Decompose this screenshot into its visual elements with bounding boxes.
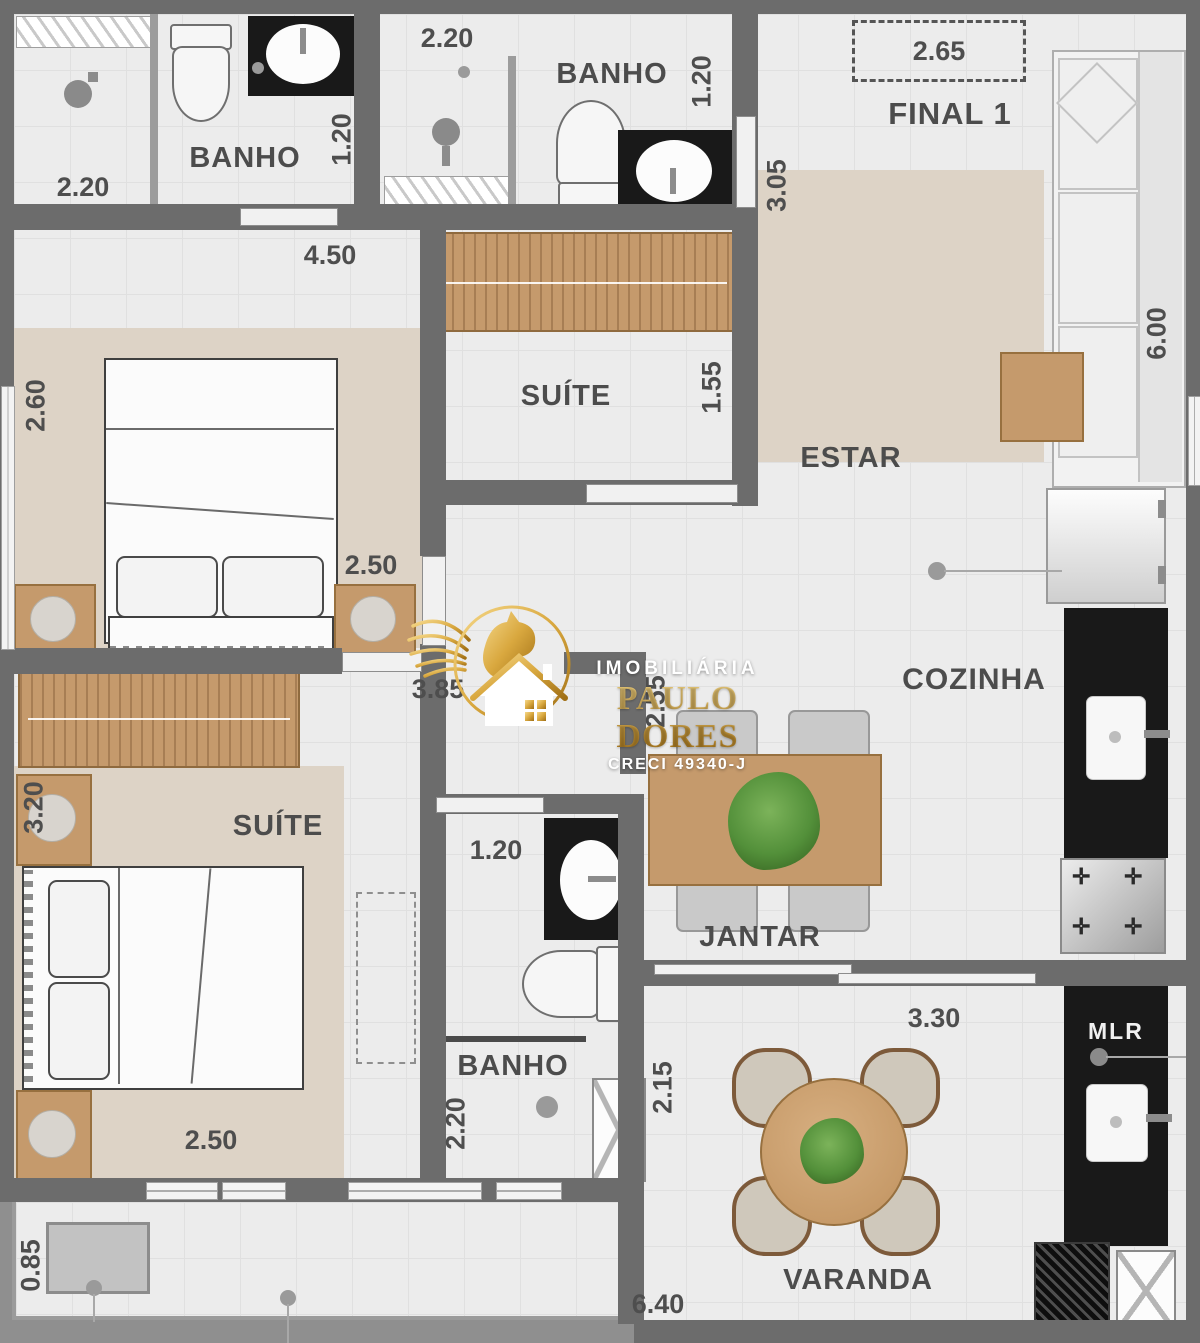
brand-line-1: IMOBILIÁRIA <box>560 658 795 680</box>
outside-bottom-left <box>0 1322 634 1343</box>
room-label-final1: FINAL 1 <box>875 96 1025 132</box>
dim-suite2-width: 2.50 <box>171 1125 251 1156</box>
dim-ledge-depth: 0.85 <box>16 1226 47 1306</box>
dim-suite1-depth: 2.60 <box>21 366 52 446</box>
estar-window <box>1188 396 1200 486</box>
banho3-toilet-bowl <box>522 950 600 1018</box>
suite1-headboard <box>108 616 334 650</box>
wall-varanda-bottom <box>632 1320 1200 1343</box>
fridge-hinge-bottom <box>1158 566 1166 584</box>
stove-burner-icon: ✛ <box>1124 866 1142 888</box>
varanda-sliding-door-panel-2 <box>838 973 1036 984</box>
dim-suite-top-width: 4.50 <box>290 240 370 271</box>
suite2-window-1 <box>146 1182 218 1200</box>
stove-burner-icon: ✛ <box>1072 866 1090 888</box>
suite2-wardrobe <box>18 668 300 768</box>
suite1-pillow-left <box>116 556 218 618</box>
dim-varanda-length: 6.40 <box>618 1289 698 1320</box>
service-leader-line <box>1106 1056 1186 1058</box>
banho1-shower-arm <box>88 72 98 82</box>
banho1-shower-partition <box>150 14 158 208</box>
estar-sofa-back <box>1138 52 1182 482</box>
dim-final-width: 2.65 <box>913 36 966 67</box>
suite2-window-3 <box>348 1182 482 1200</box>
room-label-banho1: BANHO <box>170 142 320 175</box>
room-label-jantar: JANTAR <box>685 921 835 954</box>
wall-banho1-banho2 <box>354 0 380 212</box>
suite-top-door <box>586 484 738 503</box>
suite-top-wardrobe <box>428 232 738 332</box>
banho3-shower-partition <box>436 1036 586 1042</box>
dim-varanda-depth: 2.15 <box>648 1048 679 1128</box>
suite1-lamp-right <box>350 596 396 642</box>
kitchen-fridge <box>1046 488 1166 604</box>
room-label-banho3: BANHO <box>438 1050 588 1083</box>
kitchen-faucet <box>1144 730 1170 738</box>
suite2-lamp-bottom <box>28 1110 76 1158</box>
wall-suite1-bottom <box>0 648 342 674</box>
dim-varanda-width: 3.30 <box>894 1003 974 1034</box>
dim-suite1-width: 2.50 <box>331 550 411 581</box>
dim-banho1-depth: 1.20 <box>327 100 358 180</box>
estar-sofa-cushion-2 <box>1058 192 1138 324</box>
wall-top <box>0 0 1200 14</box>
room-label-banho2: BANHO <box>537 58 687 91</box>
dim-banho3-width: 1.20 <box>456 835 536 866</box>
wall-suitetop-estar <box>732 0 758 506</box>
final1-dashed-opening: 2.65 <box>852 20 1026 82</box>
shower-head-icon <box>64 80 92 108</box>
room-label-cozinha: COZINHA <box>884 663 1064 697</box>
dim-entry-depth: 3.05 <box>762 146 793 226</box>
banho3-door <box>436 797 544 813</box>
banho2-leader-dot <box>458 66 470 78</box>
suite1-bed-sheet-line <box>106 428 334 430</box>
banho3-shower-drain <box>536 1096 558 1118</box>
ledge-leader-line <box>287 1304 289 1343</box>
banho2-door <box>736 116 756 208</box>
banho2-faucet <box>670 168 676 194</box>
banho3-faucet <box>588 876 616 882</box>
dim-estar-length: 6.00 <box>1142 289 1173 379</box>
service-faucet <box>1146 1114 1172 1122</box>
banho1-faucet <box>300 28 306 54</box>
wall-banho3-right <box>618 794 644 1178</box>
banho1-door <box>240 208 338 226</box>
banho2-shower-arm <box>442 146 450 166</box>
dim-banho2-depth: 1.20 <box>687 42 718 122</box>
suite1-lamp-left <box>30 596 76 642</box>
shower-head-icon <box>432 118 460 146</box>
banho2-shower-glass <box>384 176 514 206</box>
mlr-label: MLR <box>1088 1018 1144 1045</box>
dim-banho1-width: 2.20 <box>43 172 123 203</box>
dim-closet-depth: 1.55 <box>697 348 728 428</box>
room-label-suite-lower: SUÍTE <box>203 810 353 843</box>
service-drain <box>1110 1116 1122 1128</box>
suite2-pillow-top <box>48 880 110 978</box>
room-label-suite-top: SUÍTE <box>491 380 641 413</box>
stove-burner-icon: ✛ <box>1124 916 1142 938</box>
banho1-toilet-bowl <box>172 46 230 122</box>
fridge-hinge-top <box>1158 500 1166 518</box>
suite2-bed-sheet-line <box>118 868 120 1084</box>
stove-burner-icon: ✛ <box>1072 916 1090 938</box>
water-heater-box <box>1034 1242 1110 1332</box>
dim-suite2-depth: 3.20 <box>19 768 50 848</box>
dim-banho3-depth: 2.20 <box>441 1084 472 1164</box>
suite2-dashed-closet <box>356 892 416 1064</box>
wall-right <box>1186 0 1200 1343</box>
brand-line-3: CRECI 49340-J <box>560 756 795 774</box>
banho1-leader-dot <box>252 62 264 74</box>
suite2-pillow-bottom <box>48 982 110 1080</box>
brand-watermark: IMOBILIÁRIA PAULO DORES CRECI 49340-J <box>560 658 795 774</box>
suite1-window <box>1 386 15 650</box>
room-label-estar: ESTAR <box>776 442 926 475</box>
cozinha-leader-line <box>944 570 1062 572</box>
floor-plan: ✛ ✛ ✛ ✛ MLR <box>0 0 1200 1343</box>
brand-logo-icon <box>405 596 580 731</box>
dim-banho2-width: 2.20 <box>407 23 487 54</box>
banho1-shower-glass <box>16 16 152 48</box>
room-label-varanda: VARANDA <box>768 1264 948 1297</box>
kitchen-drain <box>1109 731 1121 743</box>
suite2-window-2 <box>222 1182 286 1200</box>
banho2-toilet-bowl <box>556 100 626 186</box>
suite1-pillow-right <box>222 556 324 618</box>
banho3-window <box>496 1182 562 1200</box>
estar-side-table <box>1000 352 1084 442</box>
brand-line-2: PAULO DORES <box>560 680 795 756</box>
banho2-shower-partition <box>508 56 516 206</box>
varanda-sliding-door-panel-1 <box>654 964 852 975</box>
suite2-headboard-trim <box>24 870 33 1082</box>
